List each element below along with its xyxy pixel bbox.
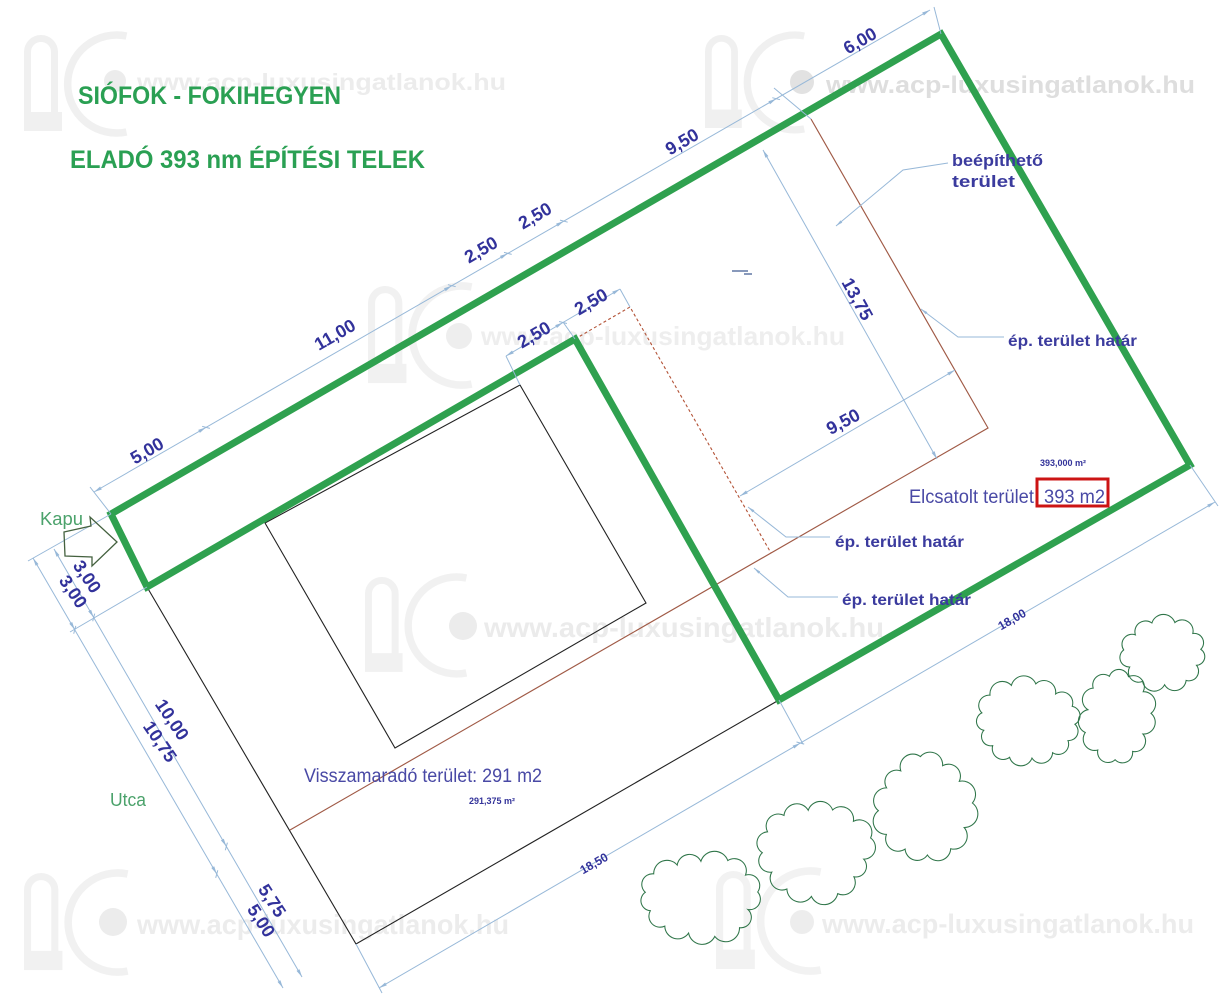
svg-text:www.acp-luxusingatlanok.hu: www.acp-luxusingatlanok.hu: [825, 72, 1195, 99]
svg-text:beépíthető: beépíthető: [952, 151, 1043, 170]
svg-text:www.acp-luxusingatlanok.hu: www.acp-luxusingatlanok.hu: [483, 612, 884, 643]
svg-text:ELADÓ 393 nm ÉPÍTÉSI TELEK: ELADÓ 393 nm ÉPÍTÉSI TELEK: [70, 144, 425, 174]
svg-text:Visszamaradó terület: 291 m2: Visszamaradó terület: 291 m2: [304, 766, 542, 787]
svg-text:ép. terület határ: ép. terület határ: [835, 534, 964, 551]
svg-text:Utca: Utca: [110, 790, 147, 810]
svg-text:www.acp-luxusingatlanok.hu: www.acp-luxusingatlanok.hu: [136, 909, 509, 940]
svg-text:terület: terület: [952, 172, 1015, 191]
svg-text:ép. terület határ: ép. terület határ: [1008, 333, 1137, 350]
svg-text:Kapu: Kapu: [40, 509, 83, 529]
svg-text:SIÓFOK - FOKIHEGYEN: SIÓFOK - FOKIHEGYEN: [78, 80, 341, 110]
svg-text:393,000 m²: 393,000 m²: [1040, 458, 1086, 468]
svg-text:www.acp-luxusingatlanok.hu: www.acp-luxusingatlanok.hu: [821, 909, 1194, 939]
svg-text:291,375 m²: 291,375 m²: [469, 796, 515, 806]
svg-text:ép. terület határ: ép. terület határ: [842, 592, 971, 609]
